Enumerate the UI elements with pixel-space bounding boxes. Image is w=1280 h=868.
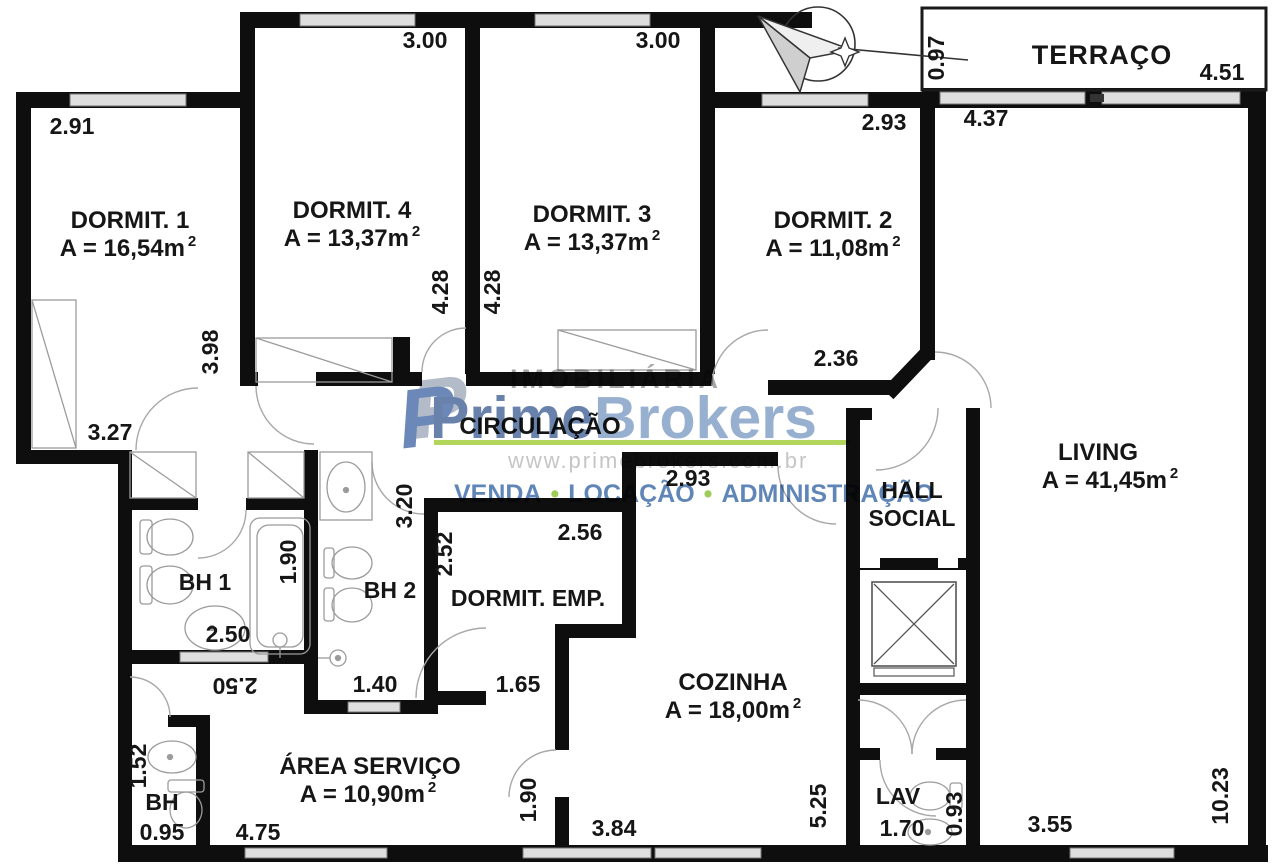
floor-plan-image: DORMIT. 1 A = 16,54m2 DORMIT. 4 A = 13,3… bbox=[0, 0, 1280, 868]
dimension-label: 1.52 bbox=[125, 744, 151, 789]
room-label-circulacao: CIRCULAÇÃO bbox=[459, 412, 620, 440]
dimension-label: 2.93 bbox=[862, 109, 907, 135]
dimension-label: 1.70 bbox=[880, 815, 925, 841]
room-label-living: LIVING bbox=[1058, 439, 1138, 466]
room-label-area-servico: ÁREA SERVIÇO bbox=[279, 752, 460, 780]
room-label-dormit-4: DORMIT. 4 bbox=[293, 197, 412, 224]
room-label-dormit-3: DORMIT. 3 bbox=[533, 201, 652, 228]
dimension-label: 3.00 bbox=[403, 27, 448, 53]
dimension-label: 1.90 bbox=[275, 540, 301, 585]
room-label-cozinha: COZINHA bbox=[678, 669, 787, 696]
dimension-label: 3.20 bbox=[391, 484, 417, 529]
dimension-label: 1.40 bbox=[353, 671, 398, 697]
dimension-label: 0.95 bbox=[140, 819, 185, 845]
elevator bbox=[860, 558, 958, 676]
room-area-dormit-2: A = 11,08m2 bbox=[765, 233, 900, 262]
room-label-terraco: TERRAÇO bbox=[1032, 40, 1173, 70]
room-label-dormit-2: DORMIT. 2 bbox=[774, 207, 893, 234]
room-area-cozinha: A = 18,00m2 bbox=[665, 695, 802, 724]
dimension-label: 2.52 bbox=[431, 532, 457, 577]
room-label-dormit-emp: DORMIT. EMP. bbox=[451, 585, 605, 611]
dimension-label: 3.84 bbox=[592, 815, 637, 841]
room-label-bh: BH bbox=[145, 789, 178, 815]
room-label-hall: HALL bbox=[881, 477, 942, 503]
dimension-label: 2.50 bbox=[206, 621, 251, 647]
dimension-label: 4.28 bbox=[427, 269, 453, 314]
dimension-label: 4.51 bbox=[1200, 59, 1245, 85]
dimension-label: 5.25 bbox=[805, 783, 831, 828]
dimension-label: 3.98 bbox=[197, 329, 223, 374]
walls bbox=[16, 12, 1268, 862]
dimension-label: 2.91 bbox=[50, 113, 95, 139]
room-area-living: A = 41,45m2 bbox=[1042, 465, 1179, 494]
room-label-bh2: BH 2 bbox=[364, 577, 416, 603]
room-label-lav: LAV bbox=[876, 783, 921, 809]
dimension-label: 2.93 bbox=[666, 465, 711, 491]
dimension-label: 4.37 bbox=[964, 105, 1009, 131]
dimension-label: 2.36 bbox=[814, 345, 859, 371]
room-area-dormit-3: A = 13,37m2 bbox=[524, 227, 661, 256]
room-area-dormit-1: A = 16,54m2 bbox=[60, 233, 197, 262]
dimension-label: 10.23 bbox=[1207, 767, 1233, 825]
dimension-label: 2.56 bbox=[558, 519, 603, 545]
dimension-label: 2.50 bbox=[213, 673, 258, 699]
room-area-area-servico: A = 10,90m2 bbox=[300, 779, 437, 808]
dimension-label: 4.28 bbox=[479, 269, 505, 314]
dimension-label: 3.00 bbox=[636, 27, 681, 53]
room-label-dormit-1: DORMIT. 1 bbox=[71, 207, 190, 234]
room-area-dormit-4: A = 13,37m2 bbox=[284, 223, 421, 252]
dimension-label: 0.93 bbox=[941, 792, 967, 837]
room-label-bh1: BH 1 bbox=[179, 569, 232, 595]
dimension-label: 4.75 bbox=[236, 819, 281, 845]
dimension-label: 1.65 bbox=[496, 671, 541, 697]
dimension-label: 0.97 bbox=[923, 36, 949, 81]
floor-plan-drawing: DORMIT. 1 A = 16,54m2 DORMIT. 4 A = 13,3… bbox=[0, 0, 1280, 868]
dimension-labels: 2.91 3.00 3.00 2.93 0.97 4.51 4.37 3.98 … bbox=[50, 27, 1245, 845]
dimension-label: 3.55 bbox=[1028, 811, 1073, 837]
dimension-label: 1.90 bbox=[515, 778, 541, 823]
room-label-hall-2: SOCIAL bbox=[869, 505, 956, 531]
dimension-label: 3.27 bbox=[88, 419, 133, 445]
